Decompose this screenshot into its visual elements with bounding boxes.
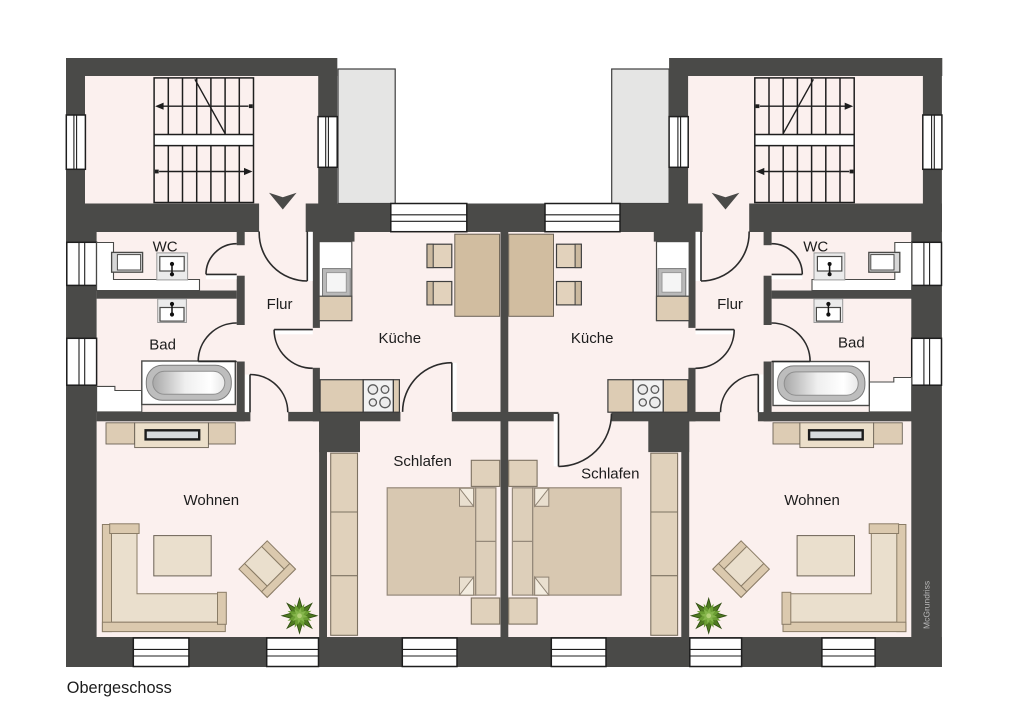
svg-text:Bad: Bad bbox=[149, 337, 176, 354]
svg-text:Obergeschoss: Obergeschoss bbox=[67, 679, 172, 697]
svg-text:Schlafen: Schlafen bbox=[581, 466, 639, 483]
svg-text:Bad: Bad bbox=[838, 335, 865, 352]
svg-text:WC: WC bbox=[803, 239, 828, 256]
svg-text:McGrundriss: McGrundriss bbox=[922, 581, 932, 629]
svg-text:Flur: Flur bbox=[717, 296, 743, 313]
svg-text:Wohnen: Wohnen bbox=[784, 492, 840, 509]
svg-text:Schlafen: Schlafen bbox=[393, 453, 451, 470]
svg-text:Flur: Flur bbox=[267, 296, 293, 313]
svg-text:WC: WC bbox=[153, 239, 178, 256]
svg-text:Wohnen: Wohnen bbox=[183, 492, 239, 509]
svg-text:Küche: Küche bbox=[571, 330, 614, 347]
svg-text:Küche: Küche bbox=[379, 330, 422, 347]
